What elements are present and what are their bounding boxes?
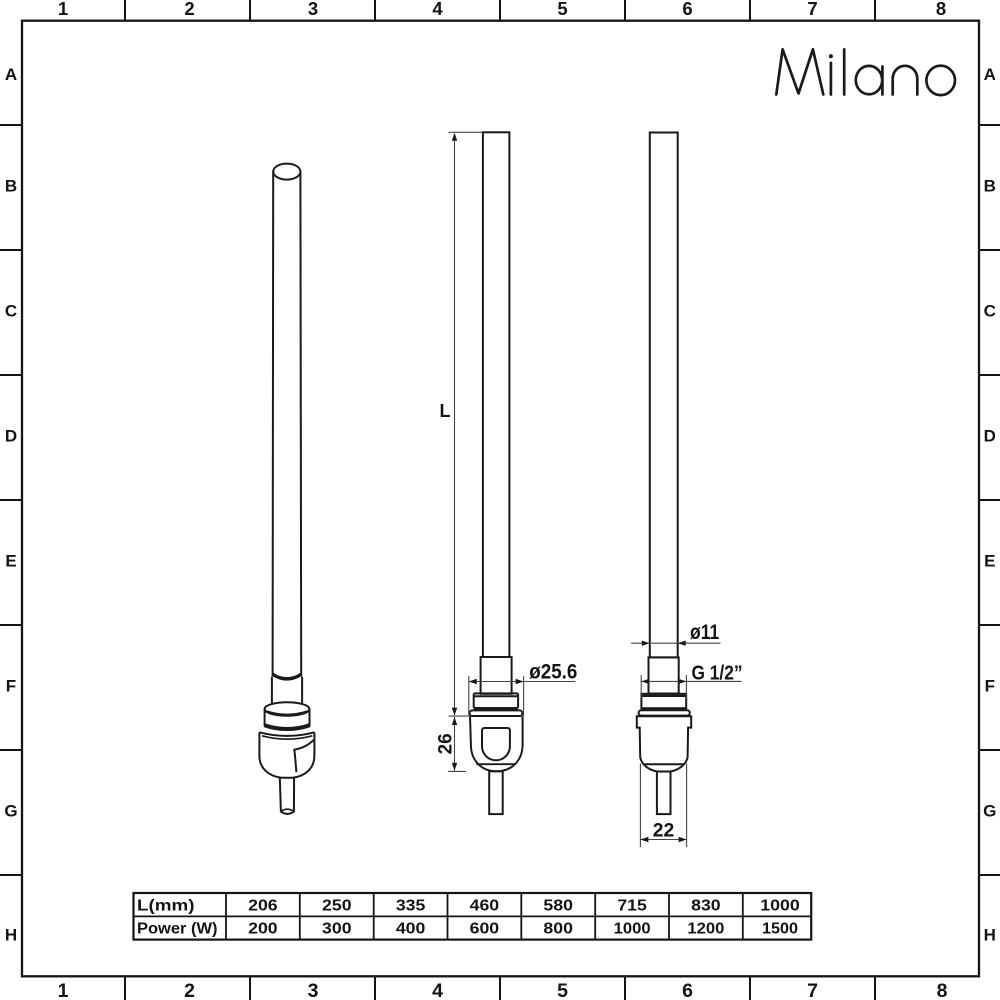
svg-text:5: 5 <box>557 0 567 19</box>
svg-text:C: C <box>984 301 996 320</box>
svg-text:G: G <box>4 801 17 820</box>
svg-text:250: 250 <box>322 898 352 915</box>
svg-text:5: 5 <box>557 980 568 1000</box>
svg-text:D: D <box>984 426 996 445</box>
svg-text:800: 800 <box>543 921 573 938</box>
svg-text:L: L <box>440 401 451 421</box>
svg-text:ø11: ø11 <box>690 621 719 644</box>
svg-text:715: 715 <box>617 898 647 915</box>
svg-text:7: 7 <box>807 980 818 1000</box>
svg-text:4: 4 <box>432 0 443 19</box>
svg-text:A: A <box>984 65 996 84</box>
svg-text:1000: 1000 <box>614 921 651 938</box>
svg-text:8: 8 <box>937 980 948 1000</box>
svg-text:580: 580 <box>543 898 573 915</box>
svg-text:2: 2 <box>184 0 194 19</box>
svg-text:6: 6 <box>682 980 693 1000</box>
svg-text:G: G <box>983 801 996 820</box>
svg-text:E: E <box>5 551 16 570</box>
svg-text:L(mm): L(mm) <box>137 898 195 915</box>
svg-text:460: 460 <box>470 898 500 915</box>
svg-text:7: 7 <box>807 0 817 19</box>
svg-text:830: 830 <box>691 898 721 915</box>
svg-text:F: F <box>6 676 16 695</box>
svg-text:200: 200 <box>248 921 278 938</box>
svg-text:1: 1 <box>58 980 69 1000</box>
svg-text:G 1/2”: G 1/2” <box>692 662 743 685</box>
svg-text:300: 300 <box>322 921 352 938</box>
svg-text:F: F <box>985 676 995 695</box>
svg-text:400: 400 <box>396 921 426 938</box>
svg-text:1200: 1200 <box>687 921 724 938</box>
svg-text:3: 3 <box>308 0 318 19</box>
svg-text:8: 8 <box>936 0 946 19</box>
svg-text:H: H <box>984 926 996 945</box>
svg-text:B: B <box>5 176 17 195</box>
svg-text:2: 2 <box>184 980 195 1000</box>
svg-text:1000: 1000 <box>760 898 800 915</box>
svg-text:26: 26 <box>435 733 456 754</box>
svg-text:E: E <box>984 551 995 570</box>
svg-text:1500: 1500 <box>762 921 798 938</box>
svg-text:600: 600 <box>470 921 500 938</box>
svg-text:H: H <box>5 926 17 945</box>
svg-text:D: D <box>5 426 17 445</box>
svg-text:4: 4 <box>432 980 443 1000</box>
svg-text:206: 206 <box>248 898 278 915</box>
svg-text:3: 3 <box>308 980 319 1000</box>
svg-text:1: 1 <box>58 0 68 19</box>
svg-text:335: 335 <box>396 898 426 915</box>
svg-text:22: 22 <box>653 821 675 842</box>
svg-text:C: C <box>5 301 17 320</box>
svg-text:Power (W): Power (W) <box>137 921 218 938</box>
svg-text:A: A <box>5 65 17 84</box>
svg-text:6: 6 <box>682 0 692 19</box>
svg-text:ø25.6: ø25.6 <box>529 661 577 684</box>
svg-text:B: B <box>984 176 996 195</box>
